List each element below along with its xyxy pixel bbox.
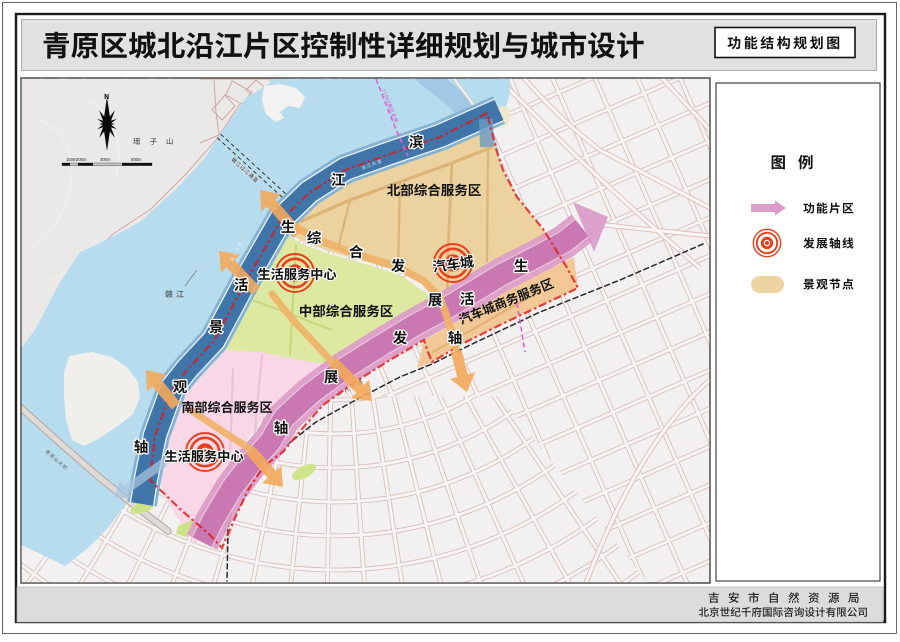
svg-text:600m: 600m <box>131 157 142 162</box>
svg-text:200m: 200m <box>76 157 87 162</box>
svg-text:400m: 400m <box>100 157 111 162</box>
